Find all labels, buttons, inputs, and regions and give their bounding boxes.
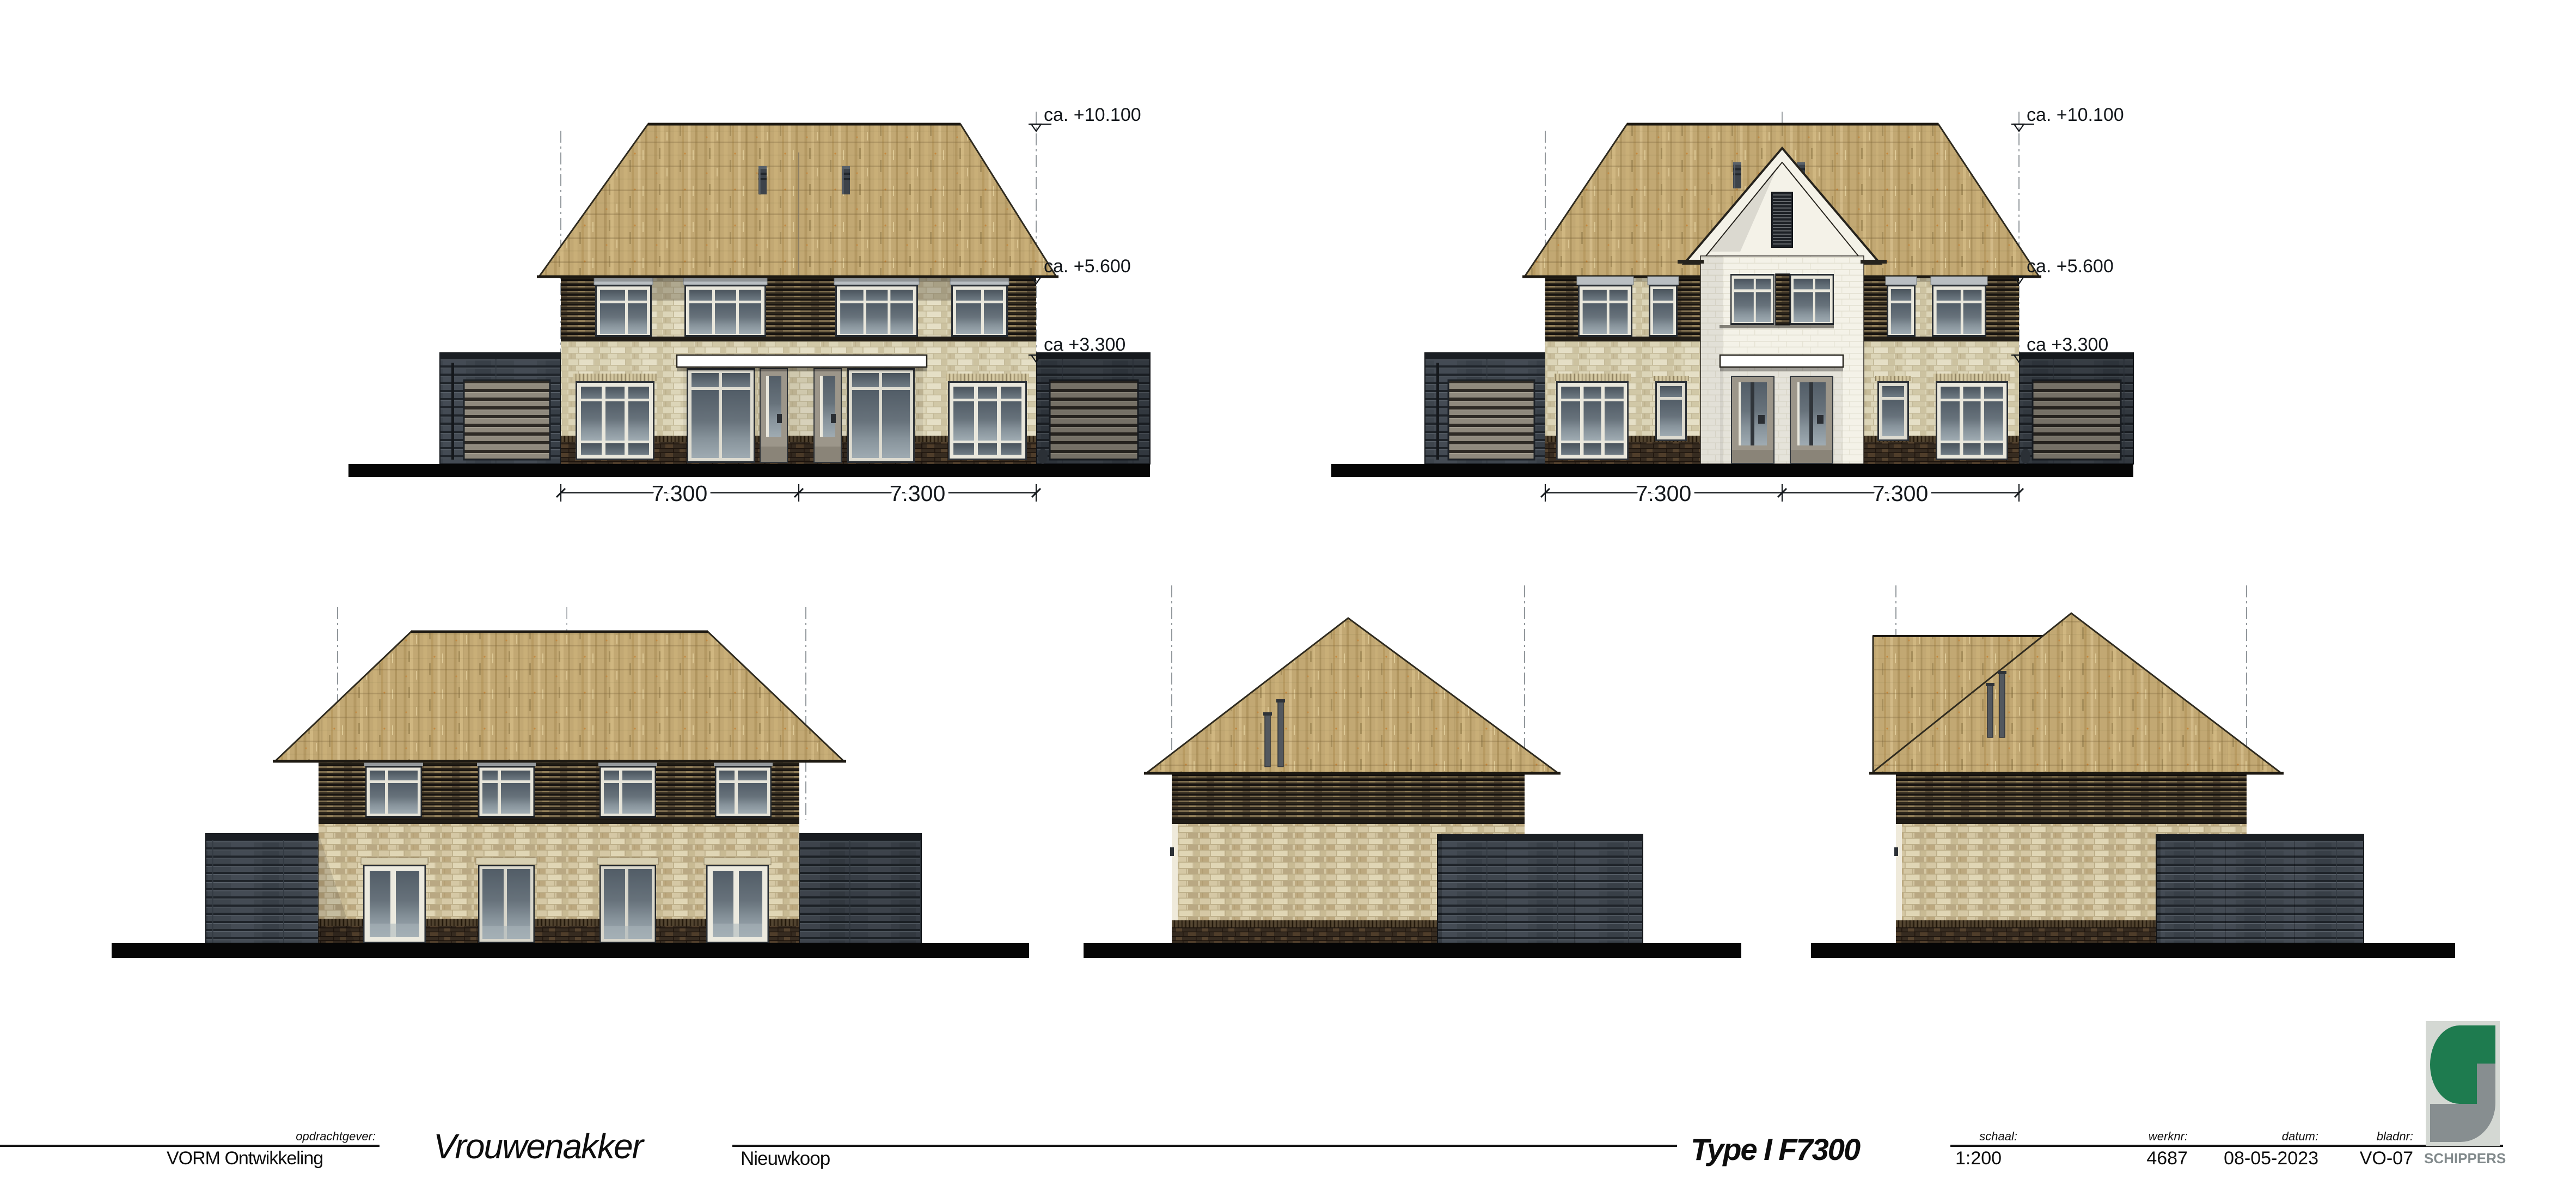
garage-left bbox=[440, 353, 561, 464]
upper-slat-band bbox=[1172, 773, 1525, 820]
dimension-label: 7.300 bbox=[1636, 481, 1692, 506]
window bbox=[595, 285, 652, 337]
level-label: ca. +10.100 bbox=[2027, 105, 2124, 125]
bollard bbox=[1038, 449, 1048, 464]
datum-label: datum: bbox=[2210, 1129, 2318, 1144]
bladnr-value: VO-07 bbox=[2304, 1148, 2413, 1169]
garden-door bbox=[478, 865, 535, 943]
level-label: ca. +5.600 bbox=[2027, 256, 2114, 277]
window bbox=[951, 285, 1008, 337]
window bbox=[1790, 274, 1834, 325]
garden-door bbox=[599, 865, 656, 943]
gable-slat-window bbox=[1771, 192, 1793, 248]
werknr-value: 4687 bbox=[2079, 1148, 2188, 1169]
entrance-canopy bbox=[677, 355, 927, 367]
elevations-canvas: ca. +10.100 ca. +5.600 ca +3.300 7.300 7… bbox=[0, 0, 2576, 1179]
fence-right bbox=[799, 834, 921, 943]
window bbox=[478, 766, 535, 818]
level-label: ca +3.300 bbox=[2027, 334, 2108, 355]
garage-left bbox=[1425, 353, 1545, 464]
thatched-roof bbox=[273, 632, 846, 766]
garage bbox=[2156, 834, 2364, 943]
front-door bbox=[1790, 376, 1833, 464]
window bbox=[599, 766, 656, 818]
ground-line bbox=[1331, 464, 2133, 477]
right-side-elevation bbox=[1811, 585, 2455, 958]
window bbox=[365, 766, 422, 818]
window bbox=[1556, 381, 1629, 460]
front-door bbox=[813, 368, 842, 463]
window bbox=[576, 381, 654, 460]
dimension-label: 7.300 bbox=[652, 481, 708, 506]
ground-line bbox=[348, 464, 1150, 477]
window bbox=[684, 285, 766, 337]
garden-door bbox=[363, 865, 426, 943]
level-label: ca +3.300 bbox=[1044, 334, 1125, 355]
window bbox=[1877, 381, 1909, 441]
window bbox=[948, 381, 1027, 460]
level-label: ca. +10.100 bbox=[1044, 105, 1141, 125]
window bbox=[1730, 274, 1775, 325]
scale-label: schaal: bbox=[1908, 1129, 2017, 1144]
window bbox=[1578, 285, 1632, 337]
front-door bbox=[760, 368, 788, 463]
ground-line bbox=[1084, 943, 1741, 958]
logo-wordmark: SCHIPPERS bbox=[2424, 1150, 2501, 1167]
fence-left bbox=[206, 834, 319, 943]
rear-elevation bbox=[112, 607, 1029, 958]
window bbox=[1649, 285, 1678, 337]
dimension-line bbox=[1541, 484, 2023, 502]
project-location: Nieuwkoop bbox=[741, 1148, 830, 1170]
left-side-elevation bbox=[1084, 585, 1741, 958]
window bbox=[715, 766, 772, 818]
thatched-roof bbox=[1144, 618, 1561, 778]
meter-box bbox=[1894, 847, 1898, 856]
window bbox=[1655, 381, 1687, 441]
upper-slat-band bbox=[1896, 773, 2247, 820]
dimension-label: 7.300 bbox=[890, 481, 946, 506]
front-elevation-b: ca. +10.100 ca. +5.600 ca +3.300 7.300 7… bbox=[1331, 105, 2133, 506]
bladnr-label: bladnr: bbox=[2304, 1129, 2413, 1144]
chimney bbox=[758, 166, 767, 194]
front-elevation-a: ca. +10.100 ca. +5.600 ca +3.300 7.300 7… bbox=[348, 105, 1150, 506]
project-title: Vrouwenakker bbox=[433, 1126, 643, 1166]
chimney bbox=[1733, 162, 1741, 188]
drawing-sheet: ca. +10.100 ca. +5.600 ca +3.300 7.300 7… bbox=[0, 0, 2576, 1179]
werknr-label: werknr: bbox=[2079, 1129, 2188, 1144]
garage bbox=[1437, 834, 1643, 943]
title-rule-right bbox=[1950, 1145, 2503, 1147]
garage-right bbox=[1036, 353, 1150, 464]
client-label: opdrachtgever: bbox=[207, 1129, 376, 1144]
dimension-label: 7.300 bbox=[1873, 481, 1929, 506]
chimney bbox=[842, 166, 850, 194]
dimension-line bbox=[556, 484, 1041, 502]
window bbox=[1887, 285, 1916, 337]
title-rule-middle bbox=[732, 1145, 1677, 1147]
window bbox=[1936, 381, 2008, 460]
client-name: VORM Ontwikkeling bbox=[167, 1148, 323, 1169]
window bbox=[847, 368, 915, 463]
front-door bbox=[1731, 376, 1775, 464]
schippers-logo bbox=[2426, 1021, 2500, 1146]
title-rule-left bbox=[0, 1145, 380, 1147]
meter-box bbox=[1170, 847, 1174, 856]
ground-line bbox=[112, 943, 1029, 958]
garden-door bbox=[706, 865, 769, 943]
thatched-roof bbox=[537, 124, 1058, 282]
scale-value: 1:200 bbox=[1955, 1148, 2002, 1169]
window bbox=[835, 285, 918, 337]
datum-value: 08-05-2023 bbox=[2210, 1148, 2318, 1169]
garage-right bbox=[2019, 353, 2133, 464]
entrance-canopy bbox=[1720, 355, 1843, 367]
level-label: ca. +5.600 bbox=[1044, 256, 1131, 277]
house-type: Type I F7300 bbox=[1691, 1132, 1859, 1167]
ground-line bbox=[1811, 943, 2455, 958]
window bbox=[687, 368, 755, 463]
window bbox=[1932, 285, 1986, 337]
